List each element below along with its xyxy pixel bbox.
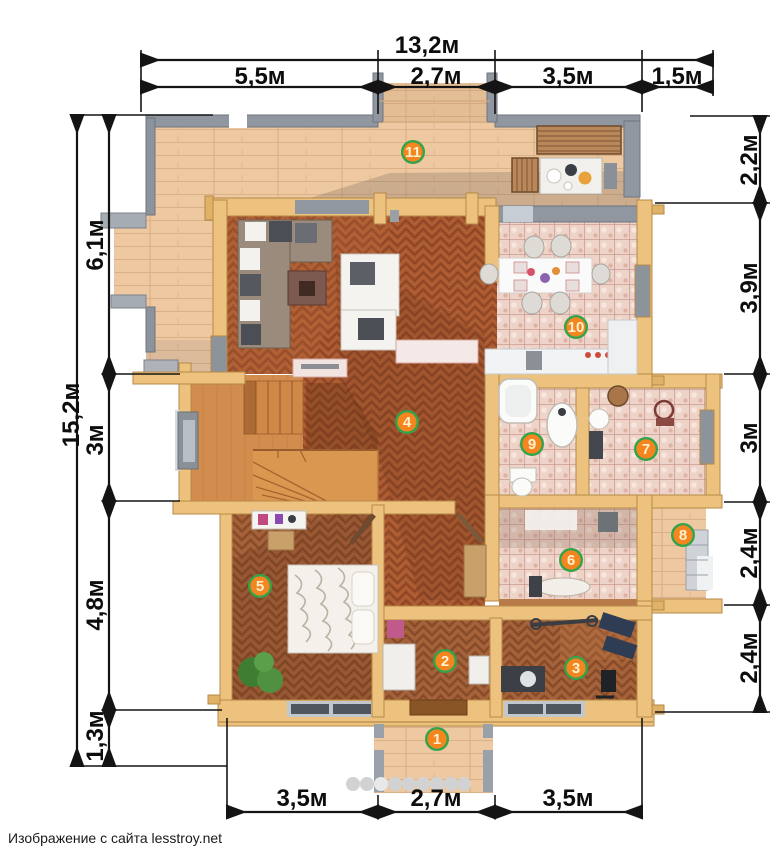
svg-text:4: 4 — [403, 414, 412, 431]
svg-text:3,5м: 3,5м — [542, 785, 593, 812]
svg-text:2,7м: 2,7м — [410, 785, 461, 812]
svg-text:1: 1 — [433, 731, 441, 748]
svg-text:3,5м: 3,5м — [542, 63, 593, 90]
svg-text:3,5м: 3,5м — [276, 785, 327, 812]
svg-text:10: 10 — [568, 319, 585, 336]
svg-text:3м: 3м — [736, 422, 763, 453]
svg-text:15,2м: 15,2м — [58, 383, 85, 447]
svg-text:3,9м: 3,9м — [736, 262, 763, 313]
svg-text:3: 3 — [572, 660, 580, 677]
svg-text:Изображение с сайта lesstroy.n: Изображение с сайта lesstroy.net — [8, 830, 222, 846]
svg-text:1,5м: 1,5м — [651, 63, 702, 90]
svg-text:6: 6 — [567, 552, 575, 569]
svg-text:2,2м: 2,2м — [736, 134, 763, 185]
svg-text:6,1м: 6,1м — [82, 219, 109, 270]
svg-text:2,7м: 2,7м — [410, 63, 461, 90]
svg-text:13,2м: 13,2м — [395, 32, 459, 59]
svg-text:3м: 3м — [82, 424, 109, 455]
svg-text:5,5м: 5,5м — [234, 63, 285, 90]
svg-text:7: 7 — [642, 441, 650, 458]
svg-text:2: 2 — [441, 653, 449, 670]
svg-text:4,8м: 4,8м — [82, 579, 109, 630]
svg-text:5: 5 — [256, 578, 264, 595]
svg-text:2,4м: 2,4м — [736, 527, 763, 578]
svg-text:9: 9 — [528, 436, 536, 453]
svg-text:8: 8 — [679, 527, 687, 544]
svg-text:11: 11 — [405, 144, 421, 161]
svg-text:1,3м: 1,3м — [82, 710, 109, 761]
svg-text:2,4м: 2,4м — [736, 632, 763, 683]
